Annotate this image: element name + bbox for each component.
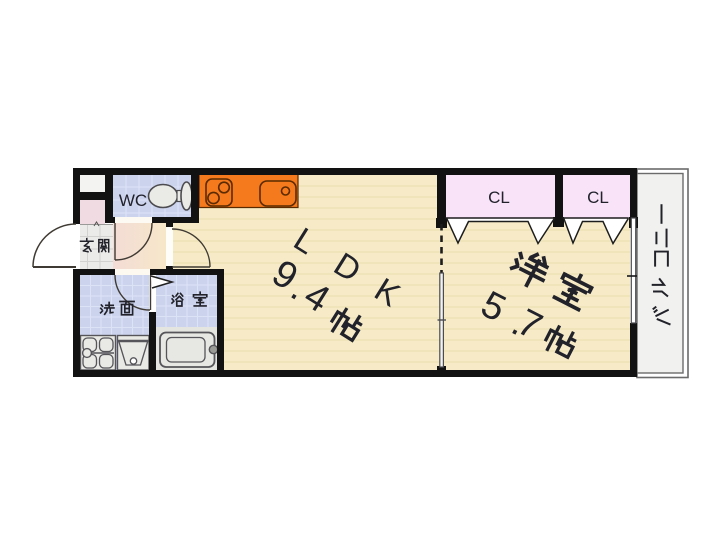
svg-text:CL: CL (488, 188, 510, 207)
svg-text:WC: WC (119, 191, 147, 210)
svg-text:CL: CL (587, 188, 609, 207)
